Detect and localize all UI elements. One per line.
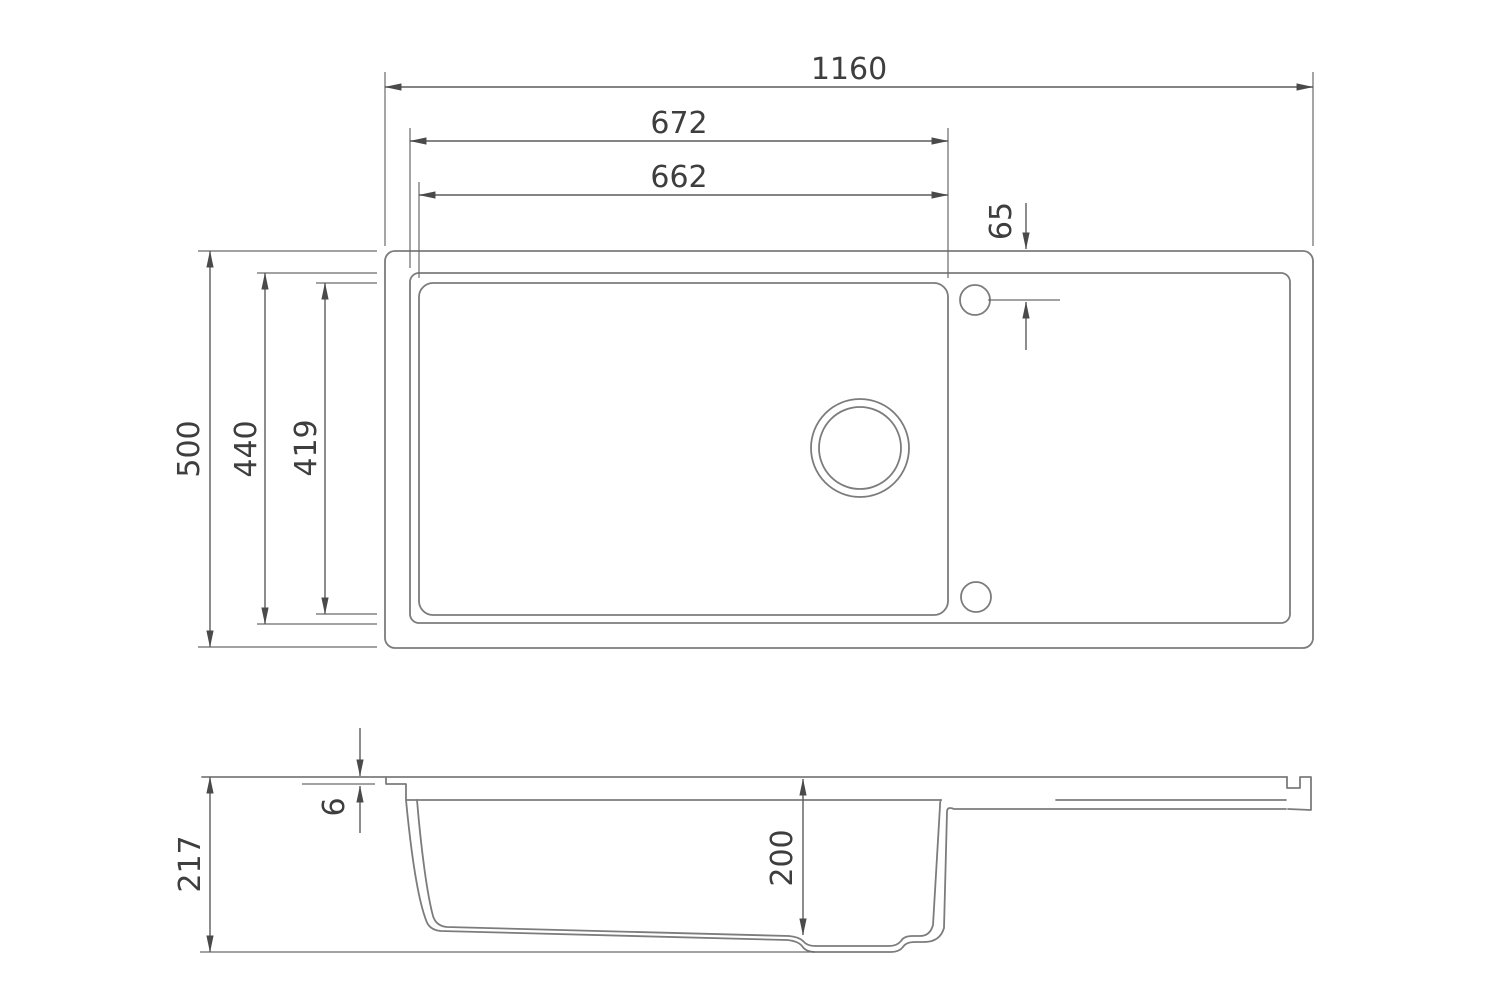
dim-overall-height: 217: [173, 777, 210, 952]
dim-label-overall-height: 217: [173, 835, 208, 892]
dim-label-rim-lip-height: 6: [317, 797, 352, 816]
dim-rim-lip-height: 6: [302, 728, 375, 833]
left-edge-step: [386, 777, 417, 800]
tap-hole: [960, 285, 990, 315]
dim-label-bowl-cutout-depth: 440: [229, 420, 264, 477]
dim-label-tap-hole-offset: 65: [984, 202, 1019, 240]
sink-rim-line: [410, 273, 1290, 623]
drain-inner-circle: [819, 407, 901, 489]
dim-label-overall-depth: 500: [172, 420, 207, 477]
dim-label-overall-width: 1160: [811, 52, 887, 87]
right-edge-profile: [1287, 777, 1311, 810]
accessory-hole: [961, 582, 991, 612]
bowl-inner-profile: [417, 800, 941, 946]
dim-bowl-depth: 200: [765, 779, 803, 935]
dim-label-bowl-inner-depth: 419: [289, 419, 324, 476]
dim-label-bowl-cutout-width: 672: [650, 106, 707, 141]
side-view: 217 6 200: [173, 728, 1311, 952]
sink-technical-drawing: 1160 672 662 65 500: [0, 0, 1500, 1000]
dim-bowl-inner-width: 662: [419, 160, 948, 278]
sink-outer-edge: [385, 251, 1313, 648]
dim-overall-width: 1160: [385, 52, 1313, 246]
dim-label-bowl-inner-width: 662: [650, 160, 707, 195]
dim-overall-depth: 500: [172, 251, 377, 647]
top-view: 1160 672 662 65 500: [172, 52, 1313, 648]
dim-label-bowl-depth: 200: [765, 829, 800, 886]
bowl-outline: [419, 283, 948, 615]
drain-outer-circle: [811, 399, 909, 497]
dim-tap-hole-offset: 65: [984, 202, 1026, 350]
technical-drawing-page: 1160 672 662 65 500: [0, 0, 1500, 1000]
dim-bowl-inner-depth: 419: [289, 283, 377, 614]
